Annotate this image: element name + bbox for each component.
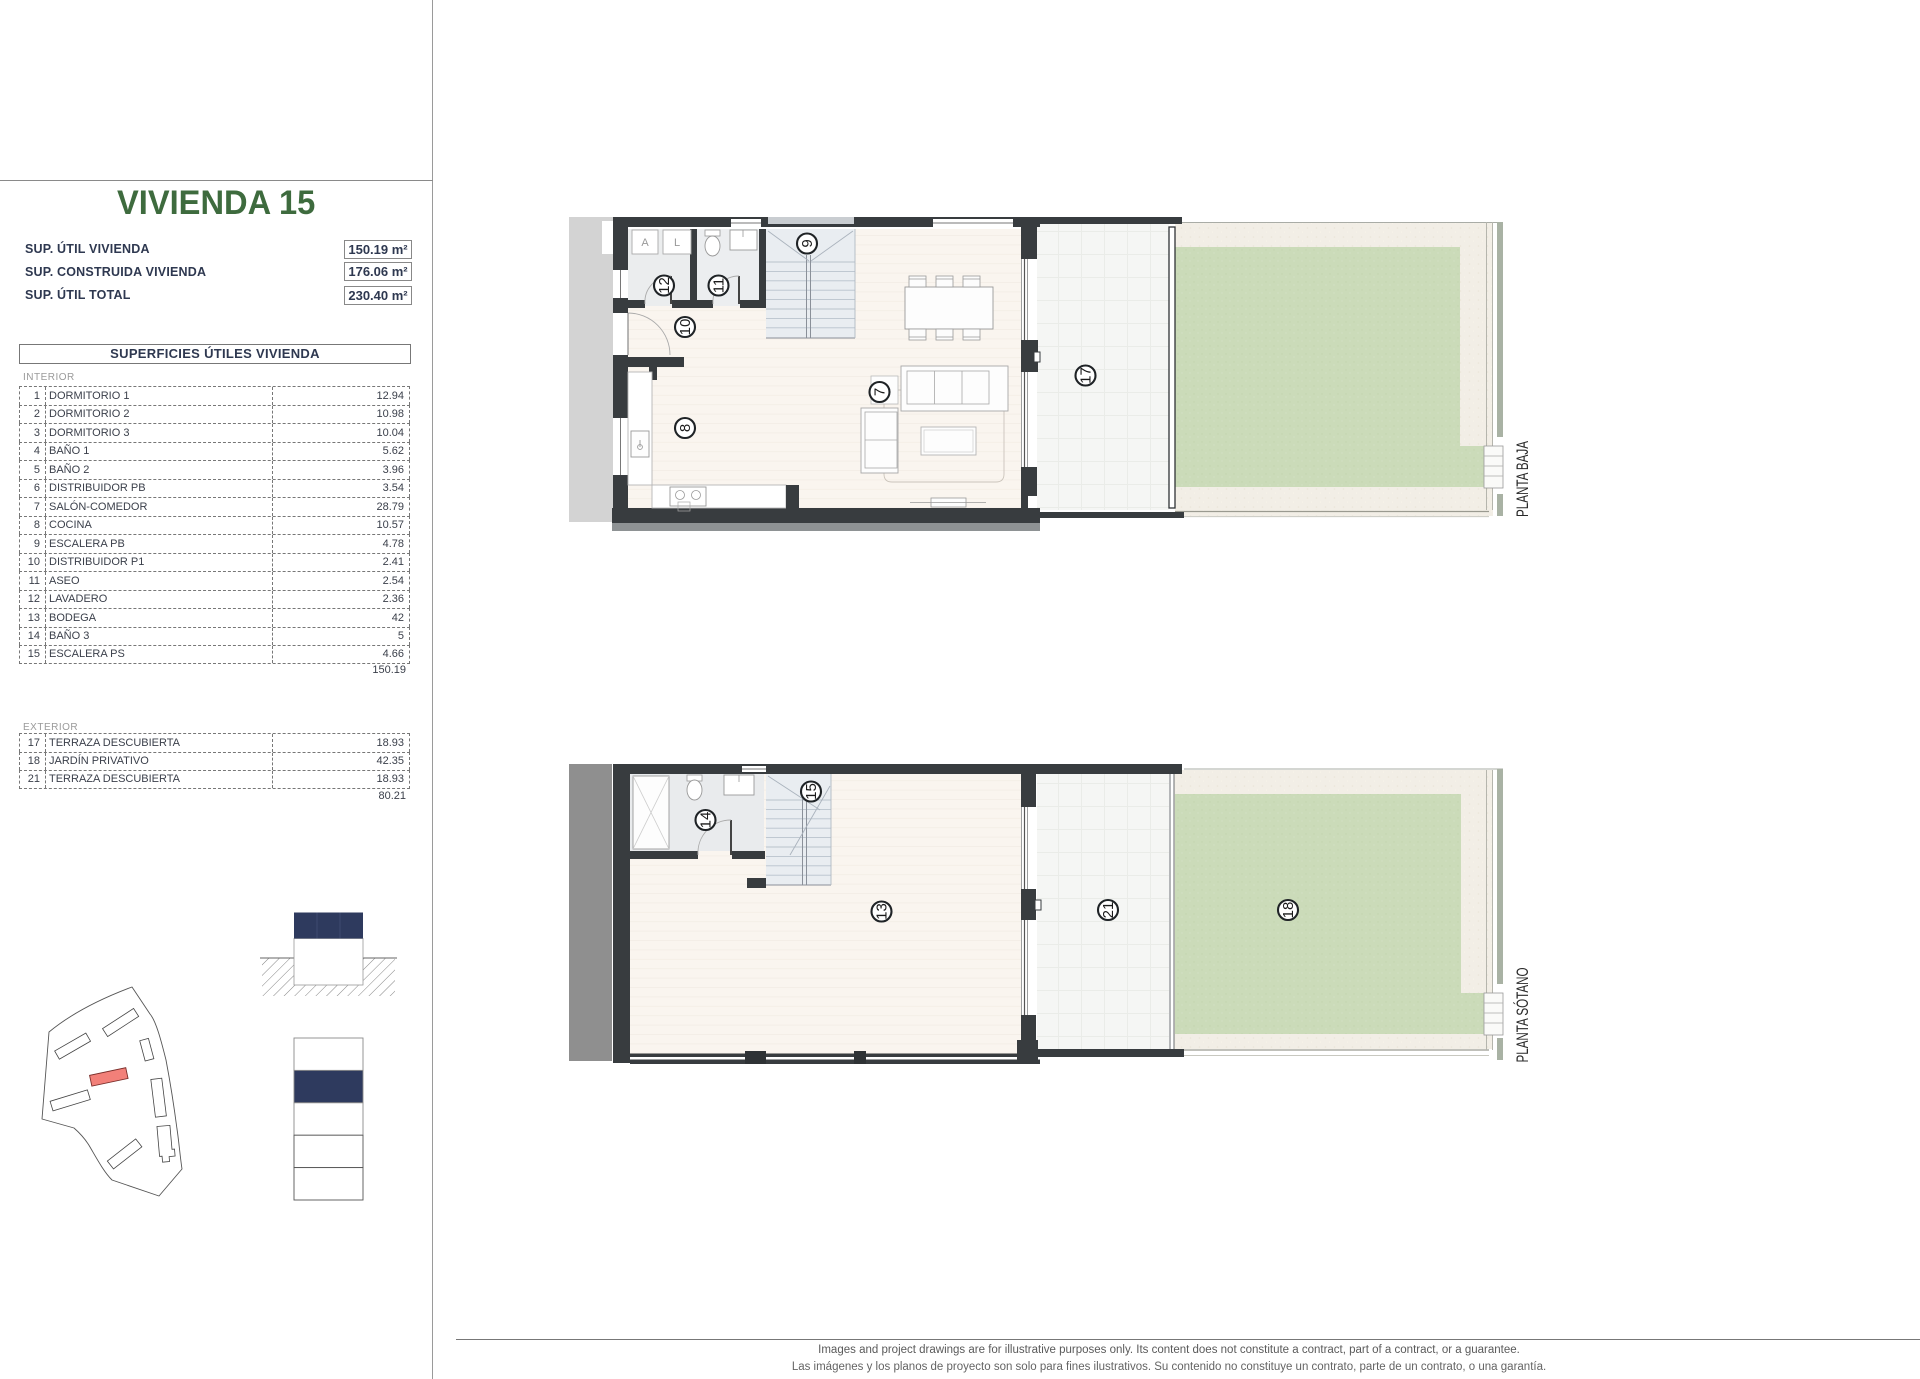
svg-text:14: 14 bbox=[698, 812, 715, 829]
svg-text:L: L bbox=[674, 237, 680, 249]
svg-text:PLANTA SÓTANO: PLANTA SÓTANO bbox=[1513, 968, 1532, 1063]
svg-text:21: 21 bbox=[1100, 902, 1117, 919]
svg-text:13: 13 bbox=[874, 903, 891, 920]
svg-text:8: 8 bbox=[677, 424, 694, 432]
svg-text:7: 7 bbox=[872, 388, 889, 396]
svg-text:18: 18 bbox=[1280, 902, 1297, 919]
svg-text:17: 17 bbox=[1078, 367, 1095, 384]
svg-text:A: A bbox=[641, 237, 649, 249]
svg-text:11: 11 bbox=[711, 278, 728, 294]
svg-text:12: 12 bbox=[656, 277, 673, 294]
svg-text:9: 9 bbox=[799, 239, 816, 247]
svg-text:10: 10 bbox=[677, 319, 694, 336]
svg-text:15: 15 bbox=[803, 783, 820, 800]
svg-text:PLANTA BAJA: PLANTA BAJA bbox=[1513, 441, 1532, 517]
